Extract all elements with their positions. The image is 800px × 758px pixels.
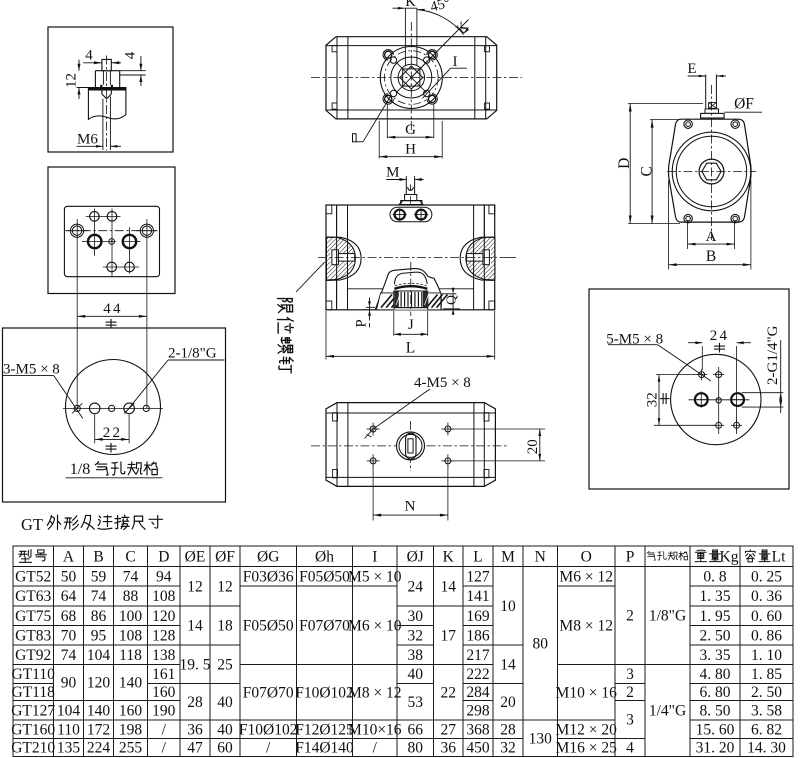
svg-text:C: C [638,166,655,176]
svg-text:3: 3 [626,666,634,683]
svg-text:24: 24 [407,579,423,596]
svg-text:B: B [93,549,103,566]
svg-text:108: 108 [119,628,143,645]
svg-text:110: 110 [57,722,80,739]
svg-text:24: 24 [710,328,729,344]
svg-text:15. 60: 15. 60 [696,722,735,739]
svg-text:128: 128 [152,628,176,645]
svg-text:298: 298 [466,703,490,720]
svg-text:130: 130 [529,731,553,748]
svg-text:47: 47 [187,740,203,757]
svg-text:28: 28 [187,694,203,711]
svg-text:M6 × 10: M6 × 10 [348,618,402,635]
svg-text:F07Ø70: F07Ø70 [299,618,350,635]
svg-text:80: 80 [532,636,548,653]
svg-text:N: N [535,549,546,566]
svg-text:169: 169 [466,608,490,625]
svg-text:22: 22 [440,685,456,702]
svg-text:N: N [405,499,416,515]
svg-text:53: 53 [407,694,423,711]
svg-text:M16 × 25: M16 × 25 [556,740,618,757]
svg-text:12: 12 [63,73,79,88]
svg-text:0. 25: 0. 25 [751,569,782,586]
svg-text:74: 74 [91,588,107,605]
svg-text:100: 100 [119,608,143,625]
svg-text:ØE: ØE [185,549,206,566]
svg-text:190: 190 [152,703,176,720]
svg-text:66: 66 [407,722,423,739]
svg-text:GT127: GT127 [11,703,55,720]
svg-text:90: 90 [61,675,77,692]
svg-text:4-M5 × 8: 4-M5 × 8 [414,375,471,391]
svg-text:GT118: GT118 [12,684,56,701]
svg-text:36: 36 [187,722,203,739]
svg-text:6. 80: 6. 80 [700,684,731,701]
svg-text:P: P [354,319,370,327]
svg-text:118: 118 [119,647,142,664]
svg-text:F14Ø140: F14Ø140 [295,740,354,757]
svg-text:217: 217 [466,647,490,664]
svg-text:94: 94 [156,569,172,586]
svg-text:141: 141 [466,588,489,605]
svg-text:1. 95: 1. 95 [700,608,731,625]
svg-text:138: 138 [152,647,176,664]
svg-text:2. 50: 2. 50 [751,684,782,701]
svg-text:L: L [473,549,482,566]
svg-text:Lt: Lt [772,549,786,566]
svg-text:120: 120 [87,675,111,692]
svg-text:2-1/8"G: 2-1/8"G [168,346,217,362]
svg-text:222: 222 [466,666,489,683]
svg-text:20: 20 [525,439,541,454]
svg-text:O: O [581,549,592,566]
svg-text:4: 4 [626,740,634,757]
svg-text:F10Ø102: F10Ø102 [295,685,354,702]
svg-text:2-G1/4"G: 2-G1/4"G [765,325,781,385]
svg-text:14. 30: 14. 30 [747,740,786,757]
svg-text:I: I [453,54,458,70]
svg-text:95: 95 [91,628,107,645]
svg-text:ØJ: ØJ [407,549,424,566]
svg-text:M12 × 20: M12 × 20 [556,722,618,739]
svg-text:C: C [125,549,135,566]
svg-text:GT160: GT160 [11,722,55,739]
svg-text:31. 20: 31. 20 [696,740,735,757]
svg-text:Kg: Kg [720,549,739,566]
svg-text:255: 255 [119,740,143,757]
svg-text:ØG: ØG [257,549,279,566]
svg-text:1/8: 1/8 [70,461,90,478]
svg-text:50: 50 [61,569,77,586]
svg-text:40: 40 [217,694,233,711]
svg-text:GT: GT [21,515,43,534]
svg-text:ØF: ØF [215,549,235,566]
svg-text:284: 284 [466,684,490,701]
svg-text:60: 60 [217,740,233,757]
svg-text:M: M [386,165,399,181]
svg-text:0. 86: 0. 86 [751,628,782,645]
svg-text:/: / [266,740,271,757]
svg-text:0. 60: 0. 60 [751,608,782,625]
svg-text:450: 450 [466,740,490,757]
svg-text:M5 × 10: M5 × 10 [348,569,402,586]
svg-text:GT63: GT63 [15,588,51,605]
svg-text:Q: Q [443,295,458,305]
svg-text:140: 140 [87,703,111,720]
svg-text:0. 36: 0. 36 [751,588,782,605]
svg-text:74: 74 [61,647,77,664]
svg-text:135: 135 [57,740,81,757]
svg-text:F03Ø36: F03Ø36 [243,569,294,586]
svg-text:3. 58: 3. 58 [751,703,782,720]
svg-text:40: 40 [217,722,233,739]
svg-text:20: 20 [500,694,516,711]
svg-text:0. 8: 0. 8 [703,569,727,586]
svg-text:GT110: GT110 [12,666,56,683]
svg-text:K: K [443,549,455,566]
svg-text:2: 2 [626,608,634,625]
svg-text:A: A [63,549,75,566]
svg-text:F12Ø125: F12Ø125 [295,722,354,739]
svg-text:140: 140 [119,675,143,692]
svg-text:2: 2 [626,684,634,701]
svg-text:G: G [405,122,416,138]
svg-text:32: 32 [407,628,423,645]
svg-text:25: 25 [217,657,233,674]
svg-text:6. 82: 6. 82 [751,722,782,739]
svg-text:1/4"G: 1/4"G [649,703,686,720]
svg-text:160: 160 [119,703,143,720]
svg-text:104: 104 [57,703,81,720]
svg-text:70: 70 [61,628,77,645]
svg-text:368: 368 [466,722,490,739]
svg-text:2. 50: 2. 50 [700,628,731,645]
svg-text:E: E [687,61,696,77]
svg-text:B: B [706,248,716,265]
svg-text:J: J [408,317,414,333]
svg-text:M: M [501,549,515,566]
svg-text:1/8"G: 1/8"G [649,608,686,625]
svg-text:M8 × 12: M8 × 12 [559,618,613,635]
svg-text:3. 35: 3. 35 [700,647,731,664]
svg-text:12: 12 [217,579,233,596]
svg-text:22: 22 [103,425,122,441]
svg-text:12: 12 [187,579,203,596]
svg-text:30: 30 [407,608,423,625]
svg-text:K: K [405,0,416,10]
svg-text:32: 32 [500,740,516,757]
svg-text:GT52: GT52 [15,569,51,586]
svg-text:GT83: GT83 [15,628,51,645]
svg-text:4: 4 [123,51,139,59]
svg-text:38: 38 [407,647,423,664]
svg-text:80: 80 [407,740,423,757]
svg-text:14: 14 [187,618,203,635]
svg-text:186: 186 [466,628,490,645]
svg-text:88: 88 [123,588,139,605]
svg-text:1. 10: 1. 10 [751,647,782,664]
svg-text:/: / [162,722,167,739]
svg-text:160: 160 [152,684,176,701]
svg-text:D: D [158,549,169,566]
svg-text:18: 18 [217,618,233,635]
svg-text:M10 × 16: M10 × 16 [556,685,618,702]
svg-text:M6 × 12: M6 × 12 [559,569,613,586]
svg-text:40: 40 [407,666,423,683]
svg-text:A: A [706,229,717,245]
svg-text:M10×16: M10×16 [348,722,402,739]
svg-text:8. 50: 8. 50 [700,703,731,720]
svg-text:14: 14 [440,579,456,596]
svg-text:I: I [372,549,377,566]
svg-text:4. 80: 4. 80 [700,666,731,683]
svg-text:1. 85: 1. 85 [751,666,782,683]
svg-text:74: 74 [123,569,139,586]
svg-text:172: 172 [87,722,110,739]
svg-text:127: 127 [466,569,490,586]
svg-text:M6: M6 [77,132,98,148]
svg-text:Øh: Øh [315,549,334,566]
svg-text:ØF: ØF [734,96,754,113]
svg-text:36: 36 [440,740,456,757]
svg-text:104: 104 [87,647,111,664]
svg-text:/: / [373,740,378,757]
svg-text:GT92: GT92 [15,647,51,664]
svg-text:F07Ø70: F07Ø70 [243,685,294,702]
svg-text:L: L [406,340,415,357]
svg-text:1. 35: 1. 35 [700,588,731,605]
svg-text:17: 17 [440,628,456,645]
svg-text:F10Ø102: F10Ø102 [239,722,298,739]
svg-text:86: 86 [91,608,107,625]
svg-text:224: 224 [87,740,111,757]
svg-text:H: H [405,142,416,158]
svg-text:3: 3 [626,712,634,729]
svg-text:44: 44 [103,301,122,317]
svg-text:161: 161 [152,666,175,683]
svg-text:108: 108 [152,588,176,605]
svg-text:32: 32 [644,392,660,407]
svg-text:120: 120 [152,608,176,625]
svg-text:28: 28 [500,722,516,739]
svg-text:14: 14 [500,657,516,674]
svg-text:59: 59 [91,569,107,586]
svg-text:3-M5 × 8: 3-M5 × 8 [3,362,60,378]
svg-text:GT210: GT210 [11,740,55,757]
svg-text:F05Ø50: F05Ø50 [299,569,350,586]
svg-text:10: 10 [500,598,516,615]
svg-text:64: 64 [61,588,77,605]
svg-text:GT75: GT75 [15,608,51,625]
svg-text:198: 198 [119,722,143,739]
svg-text:68: 68 [61,608,77,625]
svg-text:27: 27 [440,722,456,739]
svg-text:D: D [616,158,633,169]
svg-text:F05Ø50: F05Ø50 [243,618,294,635]
svg-text:M8 × 12: M8 × 12 [348,685,402,702]
svg-text:19. 5: 19. 5 [180,657,211,674]
svg-text:/: / [162,740,167,757]
svg-text:4: 4 [85,48,93,64]
svg-text:P: P [626,549,635,566]
